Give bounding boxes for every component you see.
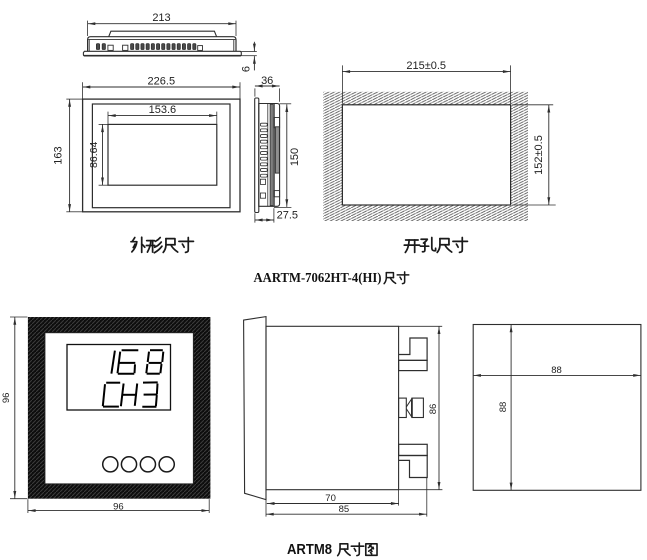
svg-text:6: 6 — [240, 66, 252, 72]
svg-text:226.5: 226.5 — [148, 76, 176, 88]
svg-text:153.6: 153.6 — [149, 104, 177, 116]
svg-text:163: 163 — [53, 146, 65, 164]
svg-text:27.5: 27.5 — [277, 210, 298, 222]
svg-text:152±0.5: 152±0.5 — [533, 135, 545, 175]
svg-text:213: 213 — [152, 12, 170, 24]
svg-text:150: 150 — [289, 148, 301, 166]
svg-text:215±0.5: 215±0.5 — [406, 60, 446, 72]
svg-text:70: 70 — [325, 493, 336, 504]
svg-text:AARTM-7062HT-4(HI): AARTM-7062HT-4(HI) — [254, 270, 382, 286]
svg-text:36: 36 — [261, 75, 273, 87]
svg-text:ARTM8: ARTM8 — [287, 541, 332, 558]
svg-text:96: 96 — [113, 501, 124, 512]
svg-text:86.64: 86.64 — [88, 142, 100, 168]
svg-text:88: 88 — [551, 365, 562, 376]
svg-text:85: 85 — [339, 504, 350, 515]
svg-text:86: 86 — [428, 404, 439, 415]
svg-text:88: 88 — [498, 402, 509, 413]
svg-text:96: 96 — [1, 393, 12, 404]
